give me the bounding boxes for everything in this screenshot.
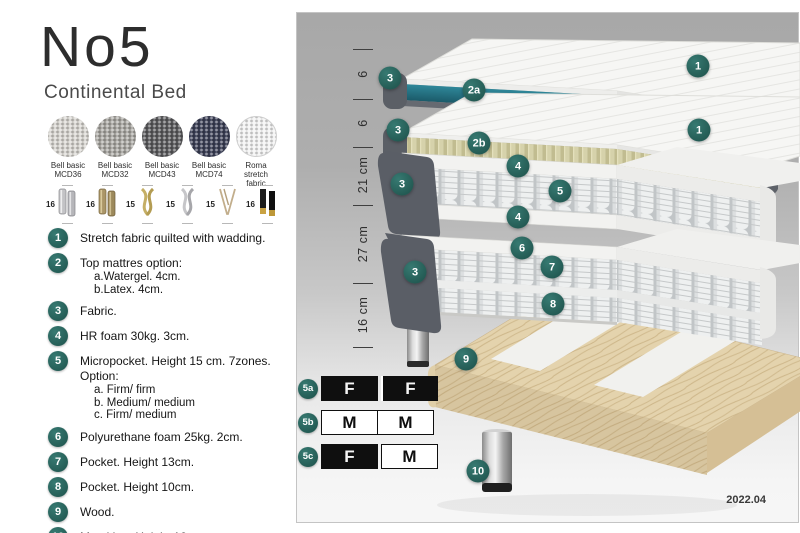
page-subtitle: Continental Bed xyxy=(44,82,187,104)
legend-list: 1 Stretch fabric quilted with wadding. 2… xyxy=(48,228,300,533)
fabric-swatch: Bell basicMCD74 xyxy=(187,116,231,188)
fabric-name: Roma xyxy=(245,161,266,170)
floor-shadow xyxy=(437,494,737,516)
dimension-label-16cm: 16 cm xyxy=(356,297,370,334)
fabric-swatch-circle xyxy=(142,116,183,157)
legend-item-10: 10 Metal leg. Height 16cm. xyxy=(48,527,300,533)
legend-number-badge: 1 xyxy=(48,228,68,248)
firmness-cell: M xyxy=(377,410,434,435)
legend-number-badge: 7 xyxy=(48,452,68,472)
callout-badge-1: 1 xyxy=(688,119,711,142)
fabric-swatch-label: Bell basicMCD32 xyxy=(93,161,137,179)
leg-option: 15 xyxy=(166,184,203,225)
legend-line: Micropocket. Height 15 cm. 7zones. Optio… xyxy=(80,354,300,384)
fabric-name: Bell basic xyxy=(145,161,179,170)
leg-height-label: 16 xyxy=(46,200,55,209)
firmness-cell: F xyxy=(381,376,438,401)
legend-item-2: 2 Top mattres option: a.Watergel. 4cm. b… xyxy=(48,253,300,296)
leg-option: 16 xyxy=(46,184,83,225)
firmness-cell: M xyxy=(381,444,438,469)
page-title: No5 xyxy=(40,14,154,80)
legend-item-1: 1 Stretch fabric quilted with wadding. xyxy=(48,228,300,248)
fabric-code: MCD32 xyxy=(101,170,128,179)
callout-badge-5: 5 xyxy=(549,180,572,203)
fabric-swatch-circle xyxy=(236,116,277,157)
legend-text: HR foam 30kg. 3cm. xyxy=(80,326,189,346)
callout-badge-1: 1 xyxy=(687,55,710,78)
fabric-swatch-circle xyxy=(48,116,89,157)
leg-hairpin-icon xyxy=(216,184,240,225)
legend-item-8: 8 Pocket. Height 10cm. xyxy=(48,477,300,497)
leg-black-gold-icon xyxy=(256,184,280,225)
fabric-code: MCD74 xyxy=(195,170,222,179)
legend-text: Polyurethane foam 25kg. 2cm. xyxy=(80,427,243,447)
legend-line: Top mattres option: xyxy=(80,256,182,271)
legend-text: Pocket. Height 13cm. xyxy=(80,452,194,472)
callout-badge-7: 7 xyxy=(541,256,564,279)
legend-number-badge: 8 xyxy=(48,477,68,497)
front-metal-leg xyxy=(482,429,512,492)
callout-badge-3: 3 xyxy=(379,67,402,90)
fabric-swatch: Bell basicMCD43 xyxy=(140,116,184,188)
dimension-label-6a: 6 xyxy=(356,70,370,77)
callout-badge-3: 3 xyxy=(387,119,410,142)
legend-subline: c. Firm/ medium xyxy=(94,410,300,422)
dimension-label-27cm: 27 cm xyxy=(356,226,370,263)
leg-option: 16 xyxy=(246,184,283,225)
ruler-tick xyxy=(353,49,373,50)
leg-height-label: 16 xyxy=(86,200,95,209)
legend-number-badge: 9 xyxy=(48,502,68,522)
legend-item-3: 3 Fabric. xyxy=(48,301,300,321)
leg-cylinder-silver-icon xyxy=(56,184,80,225)
legend-text: Micropocket. Height 15 cm. 7zones. Optio… xyxy=(80,351,300,422)
fabric-swatch: Bell basicMCD36 xyxy=(46,116,90,188)
fabric-swatch-circle xyxy=(189,116,230,157)
cutaway-diagram-panel: 6 6 21 cm 27 cm 16 cm 3 2a 1 3 2b 1 4 5 … xyxy=(296,12,799,523)
legend-number-badge: 2 xyxy=(48,253,68,273)
legend-item-5: 5 Micropocket. Height 15 cm. 7zones. Opt… xyxy=(48,351,300,422)
callout-badge-2b: 2b xyxy=(468,132,491,155)
legend-item-9: 9 Wood. xyxy=(48,502,300,522)
legend-text: Top mattres option: a.Watergel. 4cm. b.L… xyxy=(80,253,182,296)
fabric-name: Bell basic xyxy=(192,161,226,170)
fabric-swatch: Bell basicMCD32 xyxy=(93,116,137,188)
leg-height-label: 15 xyxy=(126,200,135,209)
legend-text: Wood. xyxy=(80,502,114,522)
callout-badge-9: 9 xyxy=(455,348,478,371)
leg-twist-gold-icon xyxy=(136,184,160,225)
legend-subline: a. Firm/ firm xyxy=(94,385,300,397)
legend-text: Pocket. Height 10cm. xyxy=(80,477,194,497)
legend-text: Metal leg. Height 16cm. xyxy=(80,527,206,533)
legend-text: Stretch fabric quilted with wadding. xyxy=(80,228,265,248)
firmness-cell: F xyxy=(321,376,378,401)
legend-item-7: 7 Pocket. Height 13cm. xyxy=(48,452,300,472)
callout-badge-3: 3 xyxy=(391,173,414,196)
firmness-row-5a: 5a F F xyxy=(298,376,438,401)
fabric-swatch-label: Bell basicMCD43 xyxy=(140,161,184,179)
ruler-tick xyxy=(353,205,373,206)
dimension-label-6b: 6 xyxy=(356,119,370,126)
leg-options: 16 16 15 15 15 16 xyxy=(46,184,283,225)
legend-subline: b. Medium/ medium xyxy=(94,398,300,410)
ruler-tick xyxy=(353,147,373,148)
legend-number-badge: 10 xyxy=(48,527,68,533)
firmness-row-5c: 5c F M xyxy=(298,444,438,469)
callout-badge-4: 4 xyxy=(507,155,530,178)
leg-height-label: 16 xyxy=(246,200,255,209)
legend-item-4: 4 HR foam 30kg. 3cm. xyxy=(48,326,300,346)
callout-badge-2a: 2a xyxy=(463,79,486,102)
legend-subline: a.Watergel. 4cm. xyxy=(94,272,182,284)
legend-item-6: 6 Polyurethane foam 25kg. 2cm. xyxy=(48,427,300,447)
dimension-label-21cm: 21 cm xyxy=(356,157,370,194)
fabric-code: MCD43 xyxy=(148,170,175,179)
legend-number-badge: 5 xyxy=(48,351,68,371)
fabric-swatch-label: Bell basicMCD74 xyxy=(187,161,231,179)
firmness-row-badge: 5c xyxy=(298,447,318,467)
firmness-cell: M xyxy=(321,410,378,435)
callout-badge-10: 10 xyxy=(467,460,490,483)
legend-subline: b.Latex. 4cm. xyxy=(94,285,182,297)
firmness-row-badge: 5a xyxy=(298,379,318,399)
callout-badge-8: 8 xyxy=(542,293,565,316)
infographic-page: No5 Continental Bed Bell basicMCD36 Bell… xyxy=(0,0,800,533)
legend-number-badge: 6 xyxy=(48,427,68,447)
version-label: 2022.04 xyxy=(726,494,766,506)
leg-option: 15 xyxy=(126,184,163,225)
fabric-swatch: Romastretch fabric xyxy=(234,116,278,188)
callout-badge-6: 6 xyxy=(511,237,534,260)
leg-cylinder-brass-icon xyxy=(96,184,120,225)
leg-option: 16 xyxy=(86,184,123,225)
callout-badge-3: 3 xyxy=(404,261,427,284)
leg-height-label: 15 xyxy=(206,200,215,209)
ruler-tick xyxy=(353,283,373,284)
leg-height-label: 15 xyxy=(166,200,175,209)
fabric-swatch-circle xyxy=(95,116,136,157)
leg-option: 15 xyxy=(206,184,243,225)
legend-number-badge: 3 xyxy=(48,301,68,321)
ruler-tick xyxy=(353,347,373,348)
callout-badge-4: 4 xyxy=(507,206,530,229)
firmness-cell: F xyxy=(321,444,378,469)
legend-number-badge: 4 xyxy=(48,326,68,346)
fabric-swatches: Bell basicMCD36 Bell basicMCD32 Bell bas… xyxy=(46,116,278,188)
fabric-swatch-label: Bell basicMCD36 xyxy=(46,161,90,179)
fabric-name: Bell basic xyxy=(98,161,132,170)
leg-twist-silver-icon xyxy=(176,184,200,225)
firmness-row-5b: 5b M M xyxy=(298,410,434,435)
legend-text: Fabric. xyxy=(80,301,117,321)
ruler-tick xyxy=(353,99,373,100)
firmness-row-badge: 5b xyxy=(298,413,318,433)
fabric-name: Bell basic xyxy=(51,161,85,170)
fabric-code: MCD36 xyxy=(54,170,81,179)
